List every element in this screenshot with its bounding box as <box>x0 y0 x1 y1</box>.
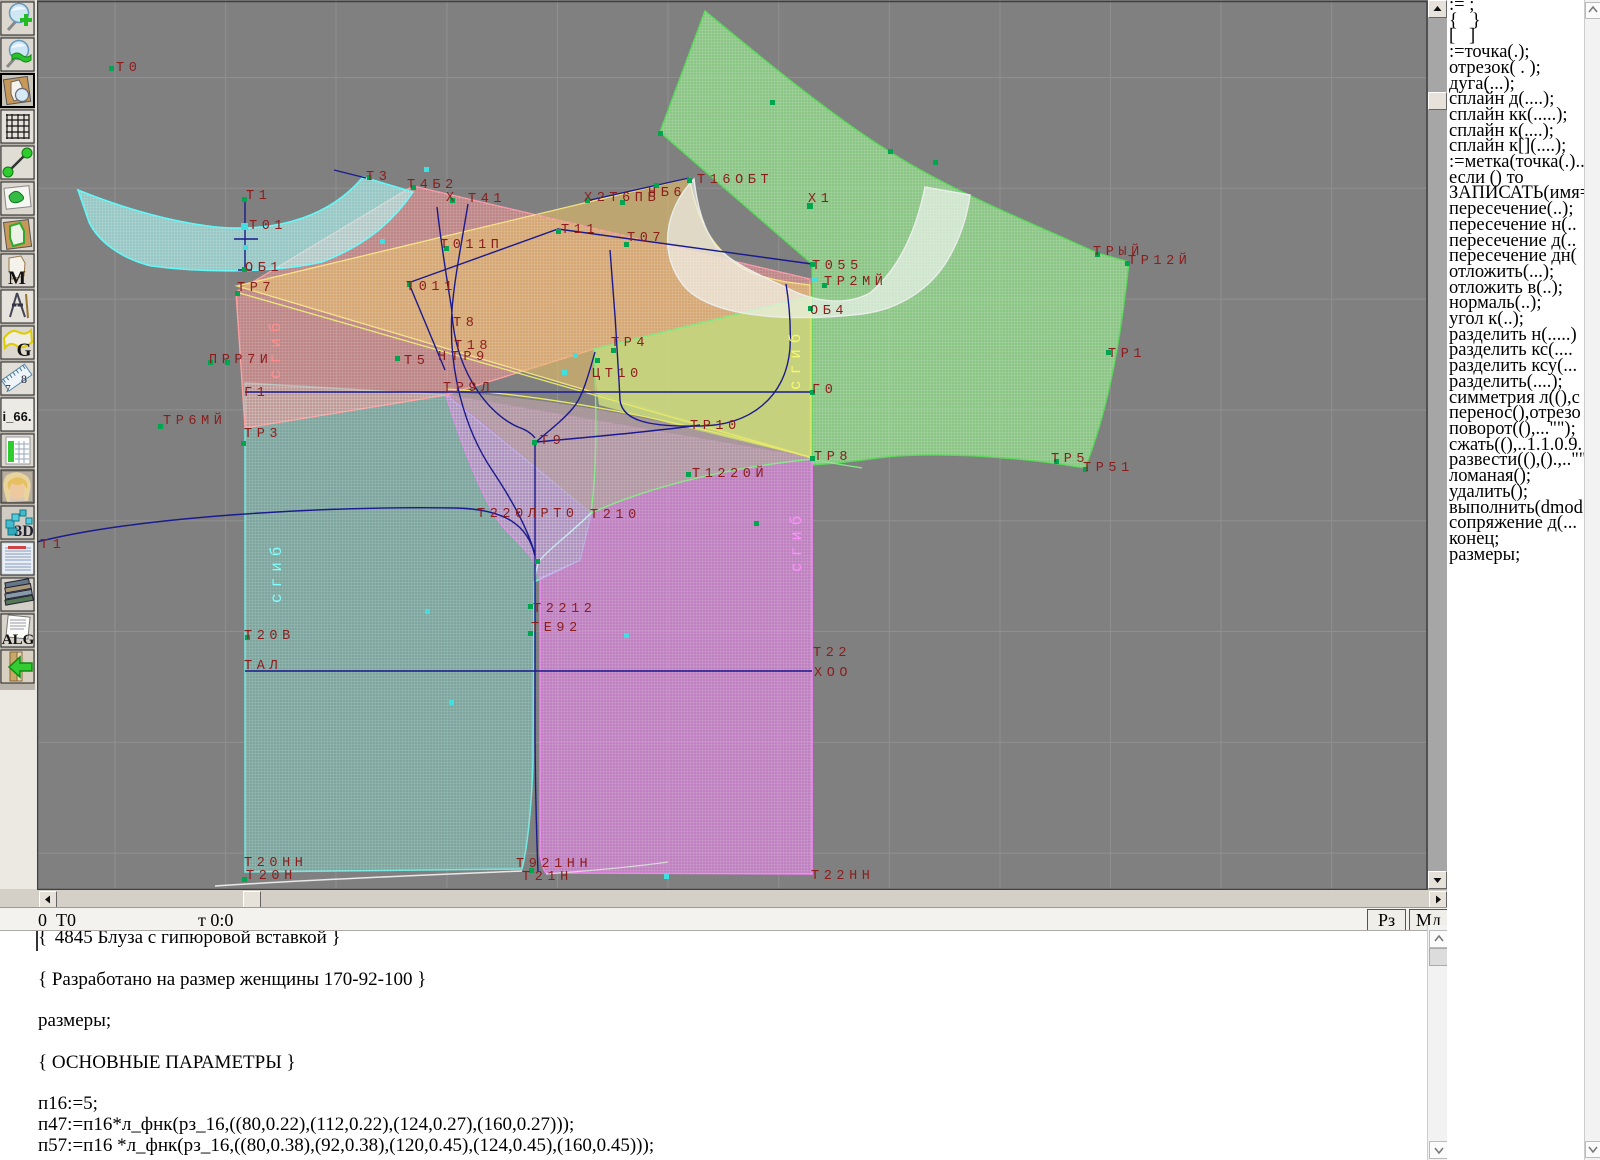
svg-text:Т01: Т01 <box>249 219 287 234</box>
svg-text:ОБ4: ОБ4 <box>810 304 848 319</box>
svg-text:ТР7: ТР7 <box>237 281 275 296</box>
svg-text:Х: Х <box>446 191 459 206</box>
svg-text:Т2212: Т2212 <box>533 602 597 617</box>
svg-text:Т22НН: Т22НН <box>811 869 875 884</box>
svg-text:Т011П: Т011П <box>440 238 504 253</box>
svg-text:Т20Н: Т20Н <box>246 869 297 884</box>
svg-text:сгиб: сгиб <box>267 317 285 379</box>
svg-text:ТР10: ТР10 <box>690 419 741 434</box>
svg-text:Т07: Т07 <box>627 231 665 246</box>
svg-text:ТЕ92: ТЕ92 <box>531 621 582 636</box>
svg-text:сгиб: сгиб <box>268 541 286 603</box>
svg-text:Т055: Т055 <box>812 259 863 274</box>
svg-text:ТР3: ТР3 <box>244 427 282 442</box>
svg-text:7: 7 <box>5 383 11 395</box>
svg-text:ТР51: ТР51 <box>1083 461 1134 476</box>
svg-text:Т210: Т210 <box>590 508 641 523</box>
svg-text:ТР1: ТР1 <box>1108 347 1146 362</box>
svg-text:Т1: Т1 <box>246 189 271 204</box>
svg-text:Х1: Х1 <box>808 192 833 207</box>
svg-text:Т21Н: Т21Н <box>522 870 573 885</box>
svg-text:Т41: Т41 <box>468 192 506 207</box>
svg-text:Т1220Й: Т1220Й <box>692 466 768 482</box>
svg-text:ХОО: ХОО <box>814 666 852 681</box>
svg-text:А: А <box>15 305 19 311</box>
svg-text:i_66.: i_66. <box>3 409 32 424</box>
svg-text:ТР2МЙ: ТР2МЙ <box>824 274 888 290</box>
svg-text:Т8: Т8 <box>453 316 478 331</box>
svg-text:ТР9Л: ТР9Л <box>443 381 494 396</box>
svg-text:сгиб: сгиб <box>788 510 806 572</box>
svg-text:НТР9: НТР9 <box>438 350 489 365</box>
svg-text:Т3: Т3 <box>366 170 391 185</box>
svg-text:Г0: Г0 <box>812 383 837 398</box>
svg-text:Т11: Т11 <box>561 223 599 238</box>
svg-text:G: G <box>17 340 32 361</box>
svg-text:Т011: Т011 <box>406 280 457 295</box>
svg-text:Т220ЛРТ0: Т220ЛРТ0 <box>477 507 579 522</box>
svg-text:ALG: ALG <box>2 632 35 648</box>
svg-text:ТАЛ: ТАЛ <box>244 659 282 674</box>
svg-text:Т22: Т22 <box>813 646 851 661</box>
svg-text:ТР12Й: ТР12Й <box>1128 253 1192 269</box>
svg-text:ТР4: ТР4 <box>611 336 649 351</box>
svg-text:сгиб: сгиб <box>787 328 805 390</box>
svg-text:ПРР7И: ПРР7И <box>209 353 273 368</box>
svg-text:ЦТ10: ЦТ10 <box>592 367 643 382</box>
svg-text:Т5: Т5 <box>404 354 429 369</box>
svg-text:Т0: Т0 <box>116 61 141 76</box>
svg-text:ОБ1: ОБ1 <box>245 261 283 276</box>
svg-text:Т16ОБТ: Т16ОБТ <box>697 173 773 188</box>
svg-text:Т9: Т9 <box>540 434 565 449</box>
svg-text:ТР6МЙ: ТР6МЙ <box>163 413 227 429</box>
svg-text:НБ6: НБ6 <box>648 186 686 201</box>
svg-text:Т20В: Т20В <box>244 629 295 644</box>
svg-text:ТР8: ТР8 <box>814 450 852 465</box>
svg-text:8: 8 <box>21 372 27 386</box>
svg-text:Т1: Т1 <box>40 538 65 553</box>
svg-text:3D: 3D <box>14 523 34 540</box>
svg-text:M: M <box>8 268 26 289</box>
svg-text:Г1: Г1 <box>244 386 269 401</box>
